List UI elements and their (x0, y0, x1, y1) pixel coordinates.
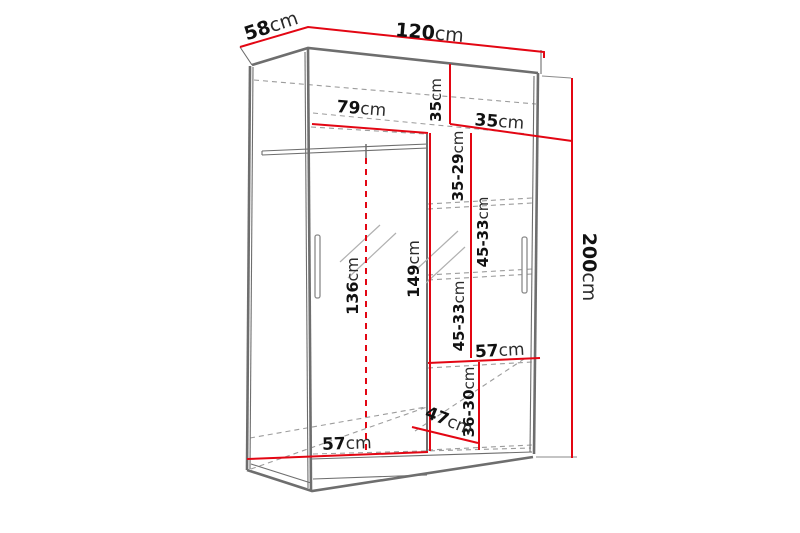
dim-top-section-height-label: 35cm (427, 78, 445, 122)
dim-height-label: 200cm (578, 233, 600, 302)
dimension-labels: 58cm 120cm 79cm 35cm 35cm 35-29cm 45-33c… (241, 7, 600, 455)
hanging-rail (262, 144, 428, 158)
dim-right-section-width-label: 35cm (474, 110, 525, 133)
dim-bottom-interior-width-label: 57cm (322, 433, 372, 455)
dim-width-label: 120cm (394, 19, 464, 47)
left-door-handle (315, 235, 320, 298)
dim-right-gap-lower-label: 45-33cm (450, 281, 468, 352)
dim-right-gap-top-label: 35-29cm (449, 131, 467, 202)
extension-lines (536, 76, 577, 457)
dim-right-shelf-width-label: 57cm (474, 340, 525, 363)
right-door-handle (522, 237, 527, 293)
dim-hanging-space-height-label: 136cm (343, 257, 362, 315)
dim-right-gap-upper-label: 45-33cm (474, 197, 492, 268)
wardrobe-dimension-diagram: 58cm 120cm 79cm 35cm 35cm 35-29cm 45-33c… (0, 0, 800, 533)
wardrobe-drawing: 58cm 120cm 79cm 35cm 35cm 35-29cm 45-33c… (0, 0, 800, 533)
dim-left-section-height-label: 149cm (404, 240, 423, 298)
hidden-edges (250, 80, 536, 469)
dim-depth-label: 58cm (241, 7, 301, 45)
dim-left-section-width-label: 79cm (336, 97, 387, 121)
